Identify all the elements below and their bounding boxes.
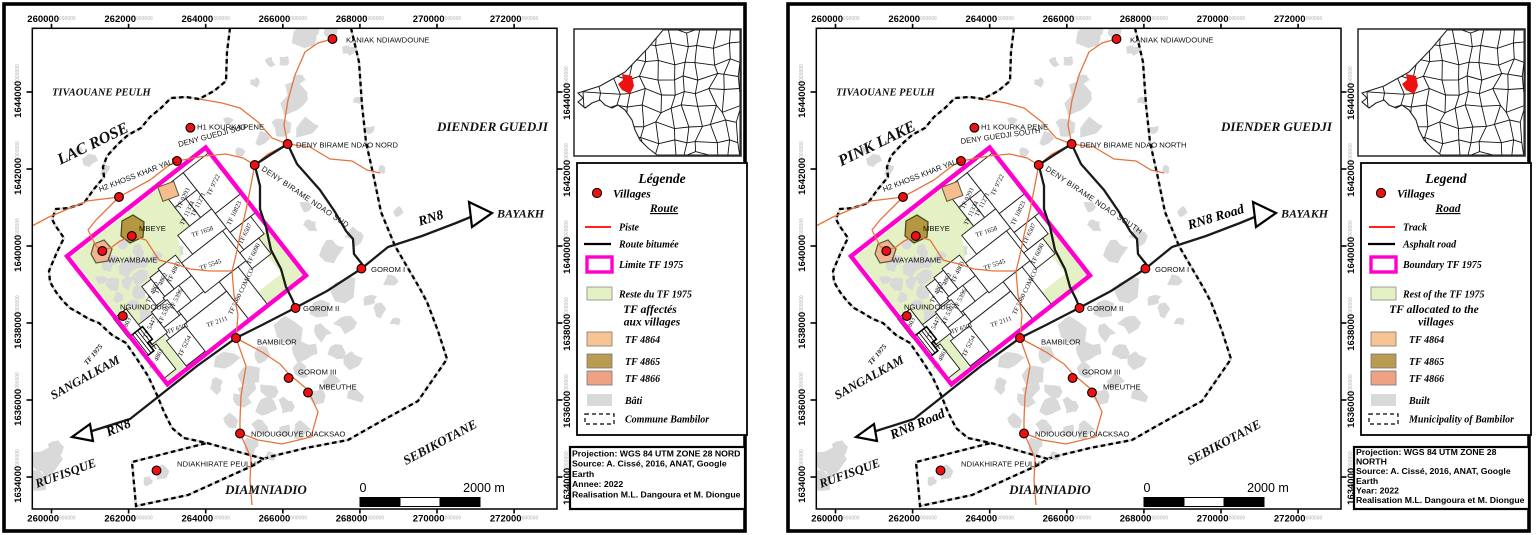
svg-text:GOROM III: GOROM III <box>298 368 336 377</box>
svg-text:KANIAK NDIAWDOUNE: KANIAK NDIAWDOUNE <box>1130 36 1213 45</box>
svg-text:Municipality of Bambilor: Municipality of Bambilor <box>1408 415 1514 426</box>
svg-text:BAMBILOR: BAMBILOR <box>1041 338 1081 347</box>
svg-text:Realisation M.L. Dangoura et M: Realisation M.L. Dangoura et M. Diongue <box>572 489 741 499</box>
svg-text:TF 4864: TF 4864 <box>625 335 660 346</box>
svg-text:GOROM II: GOROM II <box>1087 304 1123 313</box>
svg-text:MBEYE: MBEYE <box>923 224 950 233</box>
svg-text:Asphalt road: Asphalt road <box>1402 240 1457 251</box>
svg-text:Earth: Earth <box>1356 476 1378 486</box>
svg-text:WAYAMBAME: WAYAMBAME <box>892 256 941 265</box>
svg-text:Bâti: Bâti <box>624 396 642 407</box>
svg-text:NDIAKHIRATE PEULH: NDIAKHIRATE PEULH <box>177 460 256 469</box>
svg-text:2000 m: 2000 m <box>463 481 505 495</box>
svg-text:GOROM I: GOROM I <box>371 265 405 274</box>
svg-text:0: 0 <box>1144 481 1151 495</box>
svg-text:Road: Road <box>1435 203 1461 215</box>
svg-text:MBEYE: MBEYE <box>139 224 166 233</box>
svg-text:0: 0 <box>360 481 367 495</box>
svg-text:Légende: Légende <box>637 171 685 186</box>
svg-text:Built: Built <box>1408 396 1431 407</box>
svg-text:Villages: Villages <box>1397 189 1435 201</box>
svg-text:Limite TF 1975: Limite TF 1975 <box>618 260 683 271</box>
svg-text:BAMBILOR: BAMBILOR <box>257 338 297 347</box>
svg-text:Source: A. Cissé, 2016, ANAT,: Source: A. Cissé, 2016, ANAT, Google <box>572 459 727 469</box>
svg-text:Piste: Piste <box>619 223 640 234</box>
svg-text:MBEUTHE: MBEUTHE <box>319 383 357 392</box>
svg-text:WAYAMBAME: WAYAMBAME <box>108 256 157 265</box>
svg-text:Track: Track <box>1403 223 1427 234</box>
svg-text:Source: A. Cissé, 2016, ANAT,: Source: A. Cissé, 2016, ANAT, Google <box>1356 466 1511 476</box>
svg-text:Realisation M.L. Dangoura et M: Realisation M.L. Dangoura et M. Diongue <box>1356 495 1525 505</box>
svg-text:Commune Bambilor: Commune Bambilor <box>625 415 709 426</box>
svg-text:Boundary TF 1975: Boundary TF 1975 <box>1402 260 1482 271</box>
svg-text:NGUINDOUF: NGUINDOUF <box>120 303 167 312</box>
svg-text:TIVAOUANE PEULH: TIVAOUANE PEULH <box>836 88 936 99</box>
svg-text:BAYAKH: BAYAKH <box>1280 207 1329 221</box>
svg-text:DENY BIRAME NDAO NORTH: DENY BIRAME NDAO NORTH <box>1080 141 1187 150</box>
svg-text:NDIAKHIRATE PEULH: NDIAKHIRATE PEULH <box>961 460 1040 469</box>
svg-text:Projection: WGS 84 UTM ZONE 28: Projection: WGS 84 UTM ZONE 28 <box>1356 447 1497 457</box>
svg-text:2000 m: 2000 m <box>1247 481 1289 495</box>
svg-text:TF 4866: TF 4866 <box>625 374 660 385</box>
svg-text:TF allocated to the: TF allocated to the <box>1389 304 1479 316</box>
svg-text:TF affectés: TF affectés <box>623 304 677 316</box>
svg-text:TF 4865: TF 4865 <box>1409 357 1444 368</box>
svg-text:NORTH: NORTH <box>1356 457 1387 467</box>
svg-text:KANIAK NDIAWDOUNE: KANIAK NDIAWDOUNE <box>346 36 429 45</box>
svg-text:DIAMNIADIO: DIAMNIADIO <box>1008 482 1091 497</box>
svg-text:DIENDER GUEDJI: DIENDER GUEDJI <box>436 119 549 134</box>
svg-text:villages: villages <box>1418 317 1454 329</box>
svg-text:NDIOUGOUYE DIACKSAO: NDIOUGOUYE DIACKSAO <box>251 430 345 439</box>
svg-text:GOROM I: GOROM I <box>1155 265 1189 274</box>
svg-text:Route: Route <box>649 203 678 215</box>
svg-text:DIENDER GUEDJI: DIENDER GUEDJI <box>1220 119 1333 134</box>
svg-text:Rest of the TF 1975: Rest of the TF 1975 <box>1402 290 1484 301</box>
svg-text:Villages: Villages <box>613 189 651 201</box>
svg-text:MBEUTHE: MBEUTHE <box>1103 383 1141 392</box>
svg-text:Earth: Earth <box>572 469 594 479</box>
svg-text:TF 4865: TF 4865 <box>625 357 660 368</box>
svg-text:Annee: 2022: Annee: 2022 <box>572 479 623 489</box>
svg-text:TF 4864: TF 4864 <box>1409 335 1444 346</box>
svg-text:DIAMNIADIO: DIAMNIADIO <box>224 482 307 497</box>
svg-text:Year: 2022: Year: 2022 <box>1356 485 1399 495</box>
svg-text:DENY BIRAME NDAO NORD: DENY BIRAME NDAO NORD <box>296 141 398 150</box>
svg-text:Projection: WGS 84 UTM ZONE 28: Projection: WGS 84 UTM ZONE 28 NORD <box>572 449 740 459</box>
svg-text:TF 4866: TF 4866 <box>1409 374 1444 385</box>
svg-text:NGUINDOUF: NGUINDOUF <box>904 303 951 312</box>
svg-text:BAYAKH: BAYAKH <box>496 207 545 221</box>
svg-text:Reste du TF 1975: Reste du TF 1975 <box>618 290 692 301</box>
svg-text:Legend: Legend <box>1424 171 1466 186</box>
svg-text:TIVAOUANE PEULH: TIVAOUANE PEULH <box>52 88 152 99</box>
svg-text:GOROM III: GOROM III <box>1082 368 1120 377</box>
svg-text:NDIOUGOUYE DIACKSAO: NDIOUGOUYE DIACKSAO <box>1035 430 1129 439</box>
svg-text:GOROM II: GOROM II <box>303 304 339 313</box>
svg-text:Route bitumée: Route bitumée <box>618 240 679 251</box>
svg-text:aux villages: aux villages <box>624 317 681 329</box>
